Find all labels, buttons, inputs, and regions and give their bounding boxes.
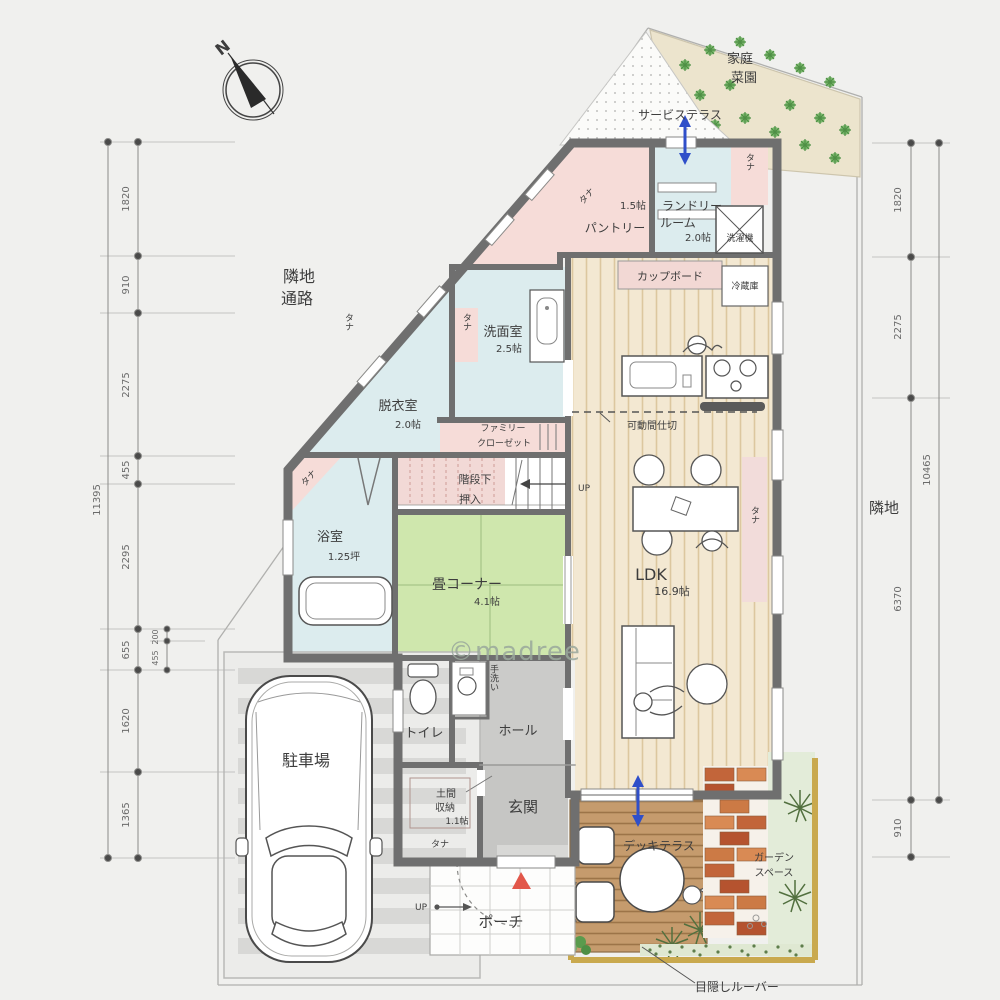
dim-left-1: 910 [121,275,132,294]
label-parking: 駐車場 [282,751,330,770]
car [236,676,382,962]
stove [706,356,768,398]
label-ldk: LDK [635,565,667,584]
label-laundry-1: ランドリー [662,199,722,213]
dim-left-total: 11395 [92,484,103,516]
dim-left-4: 2295 [121,544,132,569]
label-washroom: 洗面室 [483,324,522,340]
label-genkan: 玄関 [508,798,538,816]
label-tatami: 畳コーナー [432,577,502,593]
dim-left-7: 1365 [121,802,132,827]
label-garden-space-2: スペース [755,868,794,879]
washing-machine [716,206,763,253]
label-family-closet-2: クローゼット [477,437,531,449]
label-garden-space-1: ガーデン [754,851,794,864]
handwash-basin [452,662,486,715]
label-toilet: トイレ [404,726,443,741]
label-pantry-size: 1.5帖 [620,199,646,212]
label-hall: ホール [498,724,537,739]
label-dressing: 脱衣室 [378,398,417,414]
dim-right-total: 10465 [922,454,933,486]
label-deck-terrace: デッキテラス [623,838,695,853]
label-shelf-ldk: タナ [749,506,760,524]
label-family-closet-1: ファミリー [480,424,525,434]
label-bath-size: 1.25坪 [328,550,360,563]
label-neighbor-passage-1: 隣地 [283,267,315,286]
label-neighbor-passage-2: 通路 [281,289,313,308]
label-shelf-dressing: タナ [343,313,354,331]
dim-left-inner-1: 455 [151,650,160,665]
label-service-terrace: サービステラス [638,108,722,122]
label-pantry: パントリー [585,221,646,235]
ldk-shelf [742,457,767,602]
porch [430,862,575,955]
label-stairs-up: UP [578,484,591,494]
label-shelf-laundry: タナ [744,153,755,171]
round-table [687,664,727,704]
dim-right-3: 910 [893,818,904,837]
label-porch-up: UP [415,903,428,913]
dim-right-2: 6370 [893,586,904,611]
label-doma-2: 収納 [435,801,455,814]
watermark: ©madree [448,637,581,667]
floor-plan-drawing: N 1820 910 2275 455 2295 655 1620 1365 1… [0,0,1000,1000]
label-porch: ポーチ [478,913,523,931]
label-washroom-size: 2.5帖 [496,342,522,355]
label-tatami-size: 4.1帖 [474,595,500,608]
dim-right-1: 2275 [893,314,904,339]
dim-left-5: 655 [121,640,132,659]
washroom-vanity [530,290,564,362]
label-ldk-size: 16.9帖 [654,585,690,598]
label-shelf-washroom: タナ [461,313,472,331]
label-fridge: 冷蔵庫 [731,280,758,292]
label-kitchen-garden-2: 菜園 [731,71,757,86]
deck-terrace [567,800,716,959]
deck-table [620,848,684,912]
dim-left-2: 2275 [121,372,132,397]
label-cupboard: カップボード [637,270,703,283]
toilet-fixture [408,664,438,714]
label-laundry-2: ルーム [660,216,696,230]
label-handwash: 手洗い [488,663,499,691]
label-dressing-size: 2.0帖 [395,418,421,431]
label-doma-size: 1.1帖 [445,815,468,827]
dim-left-0: 1820 [121,186,132,211]
floor-plan-canvas: N 1820 910 2275 455 2295 655 1620 1365 1… [0,0,1000,1000]
label-doma-shelf: タナ [431,839,449,850]
bathtub [299,577,392,625]
dim-left-inner-0: 200 [151,629,160,644]
label-kitchen-garden-1: 家庭 [727,51,753,67]
label-laundry-size: 2.0帖 [685,231,711,244]
label-doma-1: 土間 [436,787,456,800]
dim-left-6: 1620 [121,708,132,733]
dim-left-3: 455 [121,460,132,479]
sofa [622,626,674,738]
label-under-stairs-1: 階段下 [459,472,492,486]
label-washer: 洗濯機 [726,232,753,244]
dim-right-0: 1820 [893,187,904,212]
label-partition: 可動間仕切 [627,419,677,432]
north-compass: N [211,36,283,120]
label-neighbor-right: 隣地 [869,499,899,517]
label-bath: 浴室 [317,529,343,545]
label-privacy-louver: 目隠しルーバー [695,980,779,994]
label-under-stairs-2: 押入 [459,492,481,506]
